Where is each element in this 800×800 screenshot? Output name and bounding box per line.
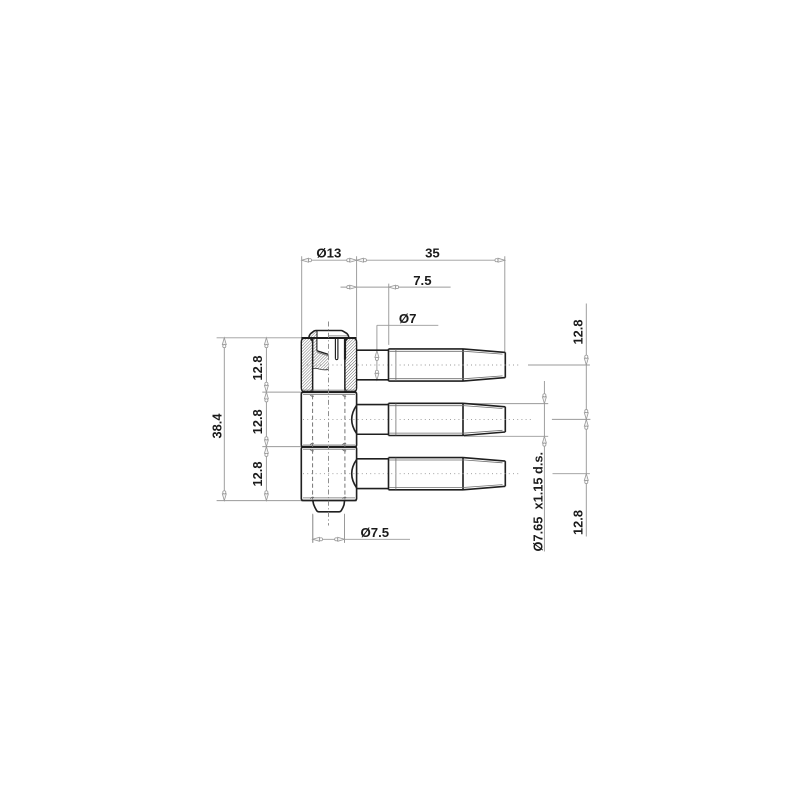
svg-text:Ø7.5: Ø7.5 [361, 525, 390, 540]
svg-text:12.8: 12.8 [570, 320, 585, 345]
svg-text:Ø7.65 x1.15 d.s.: Ø7.65 x1.15 d.s. [530, 452, 545, 552]
svg-text:35: 35 [425, 245, 440, 260]
svg-text:38.4: 38.4 [209, 413, 224, 439]
svg-text:Ø7: Ø7 [399, 311, 417, 326]
svg-text:Ø13: Ø13 [316, 245, 341, 260]
svg-text:12.8: 12.8 [250, 462, 265, 487]
svg-text:12.8: 12.8 [250, 356, 265, 381]
svg-text:12.8: 12.8 [570, 510, 585, 535]
svg-text:12.8: 12.8 [250, 409, 265, 434]
svg-text:7.5: 7.5 [413, 273, 431, 288]
